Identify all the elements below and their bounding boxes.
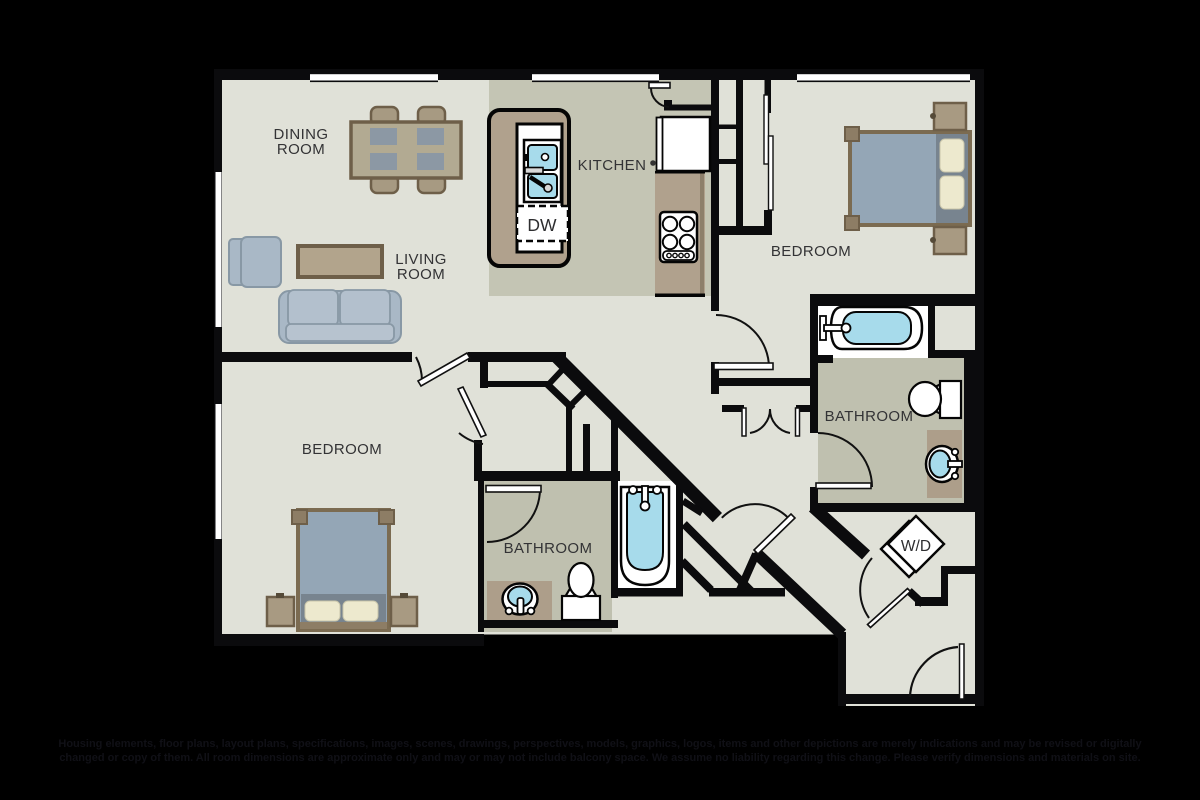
- svg-text:W/D: W/D: [901, 538, 931, 555]
- svg-text:BATHROOM: BATHROOM: [825, 408, 914, 425]
- svg-text:BEDROOM: BEDROOM: [771, 243, 851, 260]
- svg-text:BATHROOM: BATHROOM: [504, 540, 593, 557]
- svg-text:ROOM: ROOM: [397, 266, 445, 283]
- svg-text:DW: DW: [527, 215, 557, 235]
- svg-text:BEDROOM: BEDROOM: [302, 441, 382, 458]
- svg-text:Housing elements, floor plans,: Housing elements, floor plans, layout pl…: [58, 738, 1142, 750]
- svg-text:ROOM: ROOM: [277, 141, 325, 158]
- svg-text:KITCHEN: KITCHEN: [578, 157, 647, 174]
- svg-text:changed or copy of them. All r: changed or copy of them. All room dimens…: [59, 752, 1140, 764]
